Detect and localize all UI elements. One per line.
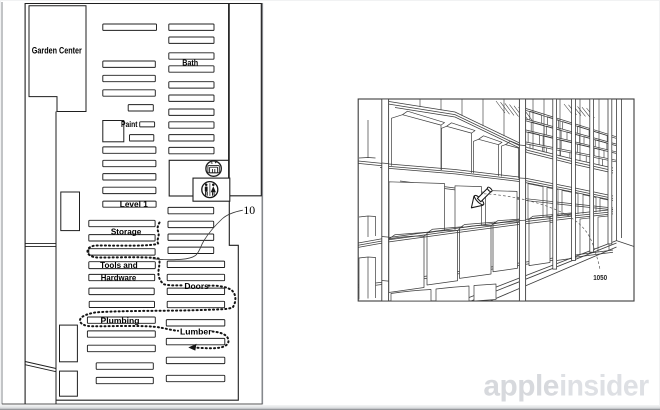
svg-text:Plumbing: Plumbing [101, 315, 140, 325]
svg-text:Bath: Bath [182, 58, 198, 68]
svg-text:10: 10 [243, 205, 255, 217]
svg-text:Doors: Doors [184, 281, 209, 291]
svg-text:Tools and: Tools and [100, 260, 138, 270]
svg-text:Paint: Paint [121, 119, 138, 129]
svg-text:Hardware: Hardware [101, 273, 137, 283]
svg-text:Garden Center: Garden Center [32, 46, 82, 56]
svg-text:1050: 1050 [593, 275, 607, 282]
svg-text:Level 1: Level 1 [120, 199, 148, 209]
svg-text:Storage: Storage [111, 226, 142, 236]
svg-text:apple: apple [483, 370, 559, 403]
svg-text:insider: insider [559, 370, 649, 403]
svg-text:Lumber: Lumber [180, 327, 212, 337]
